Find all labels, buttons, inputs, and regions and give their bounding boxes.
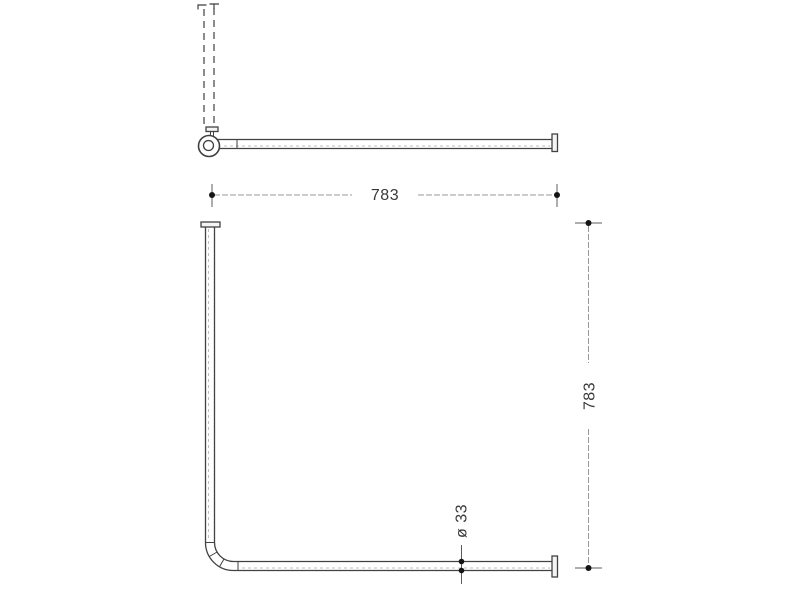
ceiling-flange [201, 222, 220, 227]
depth-dimension: 783 [575, 220, 602, 571]
side-view [198, 4, 558, 157]
diameter-dot-top [459, 559, 465, 565]
wall-flange-plan-view [552, 556, 558, 577]
diameter-dimension-label: ø 33 [454, 504, 471, 538]
dimension-dot-bottom [586, 565, 592, 571]
depth-dimension-label: 783 [582, 382, 599, 410]
ceiling-cut-mark-left [198, 5, 207, 10]
ceiling-support-centerlines [198, 4, 219, 124]
bracket-clamp [206, 127, 218, 132]
corner-elbow-end-view-inner [204, 141, 214, 151]
technical-drawing-canvas: 783 783 [0, 0, 804, 590]
width-dimension: 783 [209, 184, 560, 207]
elbow-segment-mark-1 [209, 552, 217, 557]
wall-flange-side-view [552, 134, 558, 152]
side-view-rail [199, 134, 558, 157]
tube-inner-edge [215, 227, 553, 562]
dimension-dot-top [586, 220, 592, 226]
dimension-dot-right [554, 192, 560, 198]
width-dimension-label: 783 [371, 187, 399, 204]
plan-view [201, 222, 558, 577]
diameter-dot-bottom [459, 568, 465, 574]
elbow-segment-mark-2 [220, 559, 225, 567]
diameter-dimension: ø 33 [454, 504, 471, 584]
dimension-dot-left [209, 192, 215, 198]
tube-outer-edge [206, 227, 553, 571]
corner-curtain-rail-drawing: 783 783 [0, 0, 804, 590]
